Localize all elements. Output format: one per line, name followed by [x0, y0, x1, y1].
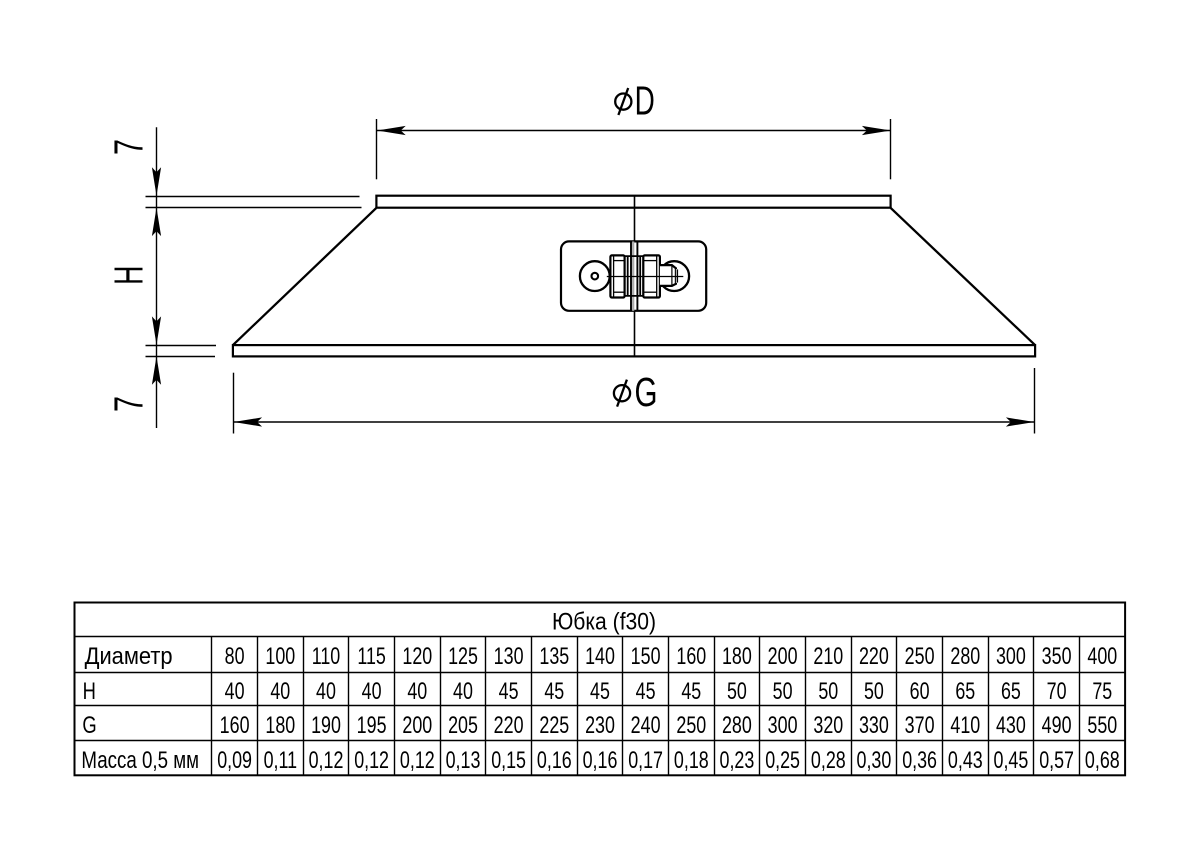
svg-text:220: 220: [859, 642, 889, 669]
svg-text:130: 130: [494, 642, 524, 669]
svg-text:0,36: 0,36: [902, 746, 937, 773]
svg-text:490: 490: [1042, 711, 1072, 738]
svg-text:0,28: 0,28: [811, 746, 846, 773]
svg-text:400: 400: [1087, 642, 1117, 669]
svg-text:50: 50: [864, 677, 884, 704]
svg-text:40: 40: [453, 677, 473, 704]
svg-text:0,68: 0,68: [1085, 746, 1120, 773]
svg-text:65: 65: [955, 677, 975, 704]
svg-text:0,43: 0,43: [948, 746, 983, 773]
svg-text:250: 250: [676, 711, 706, 738]
svg-text:40: 40: [407, 677, 427, 704]
svg-text:45: 45: [636, 677, 656, 704]
svg-text:50: 50: [727, 677, 747, 704]
svg-text:180: 180: [265, 711, 295, 738]
svg-text:140: 140: [585, 642, 615, 669]
svg-text:40: 40: [316, 677, 336, 704]
svg-text:550: 550: [1087, 711, 1117, 738]
svg-text:320: 320: [813, 711, 843, 738]
svg-text:45: 45: [499, 677, 519, 704]
svg-text:115: 115: [357, 642, 386, 669]
svg-text:45: 45: [590, 677, 610, 704]
svg-text:0,25: 0,25: [765, 746, 800, 773]
svg-text:250: 250: [905, 642, 935, 669]
svg-text:40: 40: [362, 677, 382, 704]
svg-text:0,45: 0,45: [994, 746, 1029, 773]
svg-text:230: 230: [585, 711, 615, 738]
svg-text:0,18: 0,18: [674, 746, 709, 773]
svg-text:65: 65: [1001, 677, 1021, 704]
svg-text:410: 410: [950, 711, 980, 738]
svg-text:0,16: 0,16: [583, 746, 618, 773]
svg-text:220: 220: [494, 711, 524, 738]
svg-text:Диаметр: Диаметр: [85, 642, 173, 669]
svg-text:7: 7: [107, 396, 152, 412]
svg-text:280: 280: [722, 711, 752, 738]
svg-text:45: 45: [544, 677, 564, 704]
svg-text:G: G: [635, 370, 658, 416]
svg-text:125: 125: [448, 642, 478, 669]
svg-text:0,17: 0,17: [628, 746, 663, 773]
svg-text:160: 160: [676, 642, 706, 669]
svg-text:195: 195: [357, 711, 387, 738]
svg-text:D: D: [635, 79, 655, 123]
svg-text:300: 300: [768, 711, 798, 738]
svg-text:40: 40: [225, 677, 245, 704]
svg-text:7: 7: [107, 139, 152, 155]
svg-text:135: 135: [539, 642, 569, 669]
svg-text:0,11: 0,11: [264, 746, 297, 773]
svg-text:70: 70: [1047, 677, 1067, 704]
svg-text:80: 80: [225, 642, 245, 669]
svg-text:330: 330: [859, 711, 889, 738]
svg-text:H: H: [83, 676, 96, 704]
svg-text:0,12: 0,12: [400, 746, 435, 773]
svg-text:Масса 0,5 мм: Масса 0,5 мм: [81, 746, 199, 774]
svg-text:Юбка (f30): Юбка (f30): [552, 607, 656, 635]
svg-text:300: 300: [996, 642, 1026, 669]
svg-text:H: H: [107, 266, 152, 285]
svg-text:180: 180: [722, 642, 752, 669]
svg-text:110: 110: [312, 642, 341, 669]
svg-text:205: 205: [448, 711, 478, 738]
svg-text:160: 160: [220, 711, 250, 738]
svg-text:190: 190: [311, 711, 341, 738]
svg-text:G: G: [82, 710, 96, 738]
svg-text:280: 280: [950, 642, 980, 669]
svg-text:0,30: 0,30: [857, 746, 892, 773]
svg-text:50: 50: [773, 677, 793, 704]
svg-text:350: 350: [1042, 642, 1072, 669]
svg-text:370: 370: [905, 711, 935, 738]
svg-text:100: 100: [265, 642, 295, 669]
svg-text:225: 225: [539, 711, 569, 738]
svg-text:0,23: 0,23: [720, 746, 755, 773]
svg-text:430: 430: [996, 711, 1026, 738]
svg-text:40: 40: [270, 677, 290, 704]
svg-text:0,57: 0,57: [1039, 746, 1074, 773]
svg-text:150: 150: [631, 642, 661, 669]
svg-text:120: 120: [402, 642, 432, 669]
svg-text:0,16: 0,16: [537, 746, 572, 773]
svg-text:0,12: 0,12: [309, 746, 344, 773]
svg-text:50: 50: [818, 677, 838, 704]
svg-text:200: 200: [768, 642, 798, 669]
svg-text:210: 210: [813, 642, 843, 669]
svg-text:240: 240: [631, 711, 661, 738]
svg-text:200: 200: [402, 711, 432, 738]
svg-text:60: 60: [910, 677, 930, 704]
svg-text:0,13: 0,13: [446, 746, 481, 773]
svg-text:0,12: 0,12: [354, 746, 389, 773]
svg-text:0,15: 0,15: [491, 746, 526, 773]
svg-text:75: 75: [1092, 677, 1112, 704]
svg-text:0,09: 0,09: [217, 746, 252, 773]
svg-text:45: 45: [681, 677, 701, 704]
